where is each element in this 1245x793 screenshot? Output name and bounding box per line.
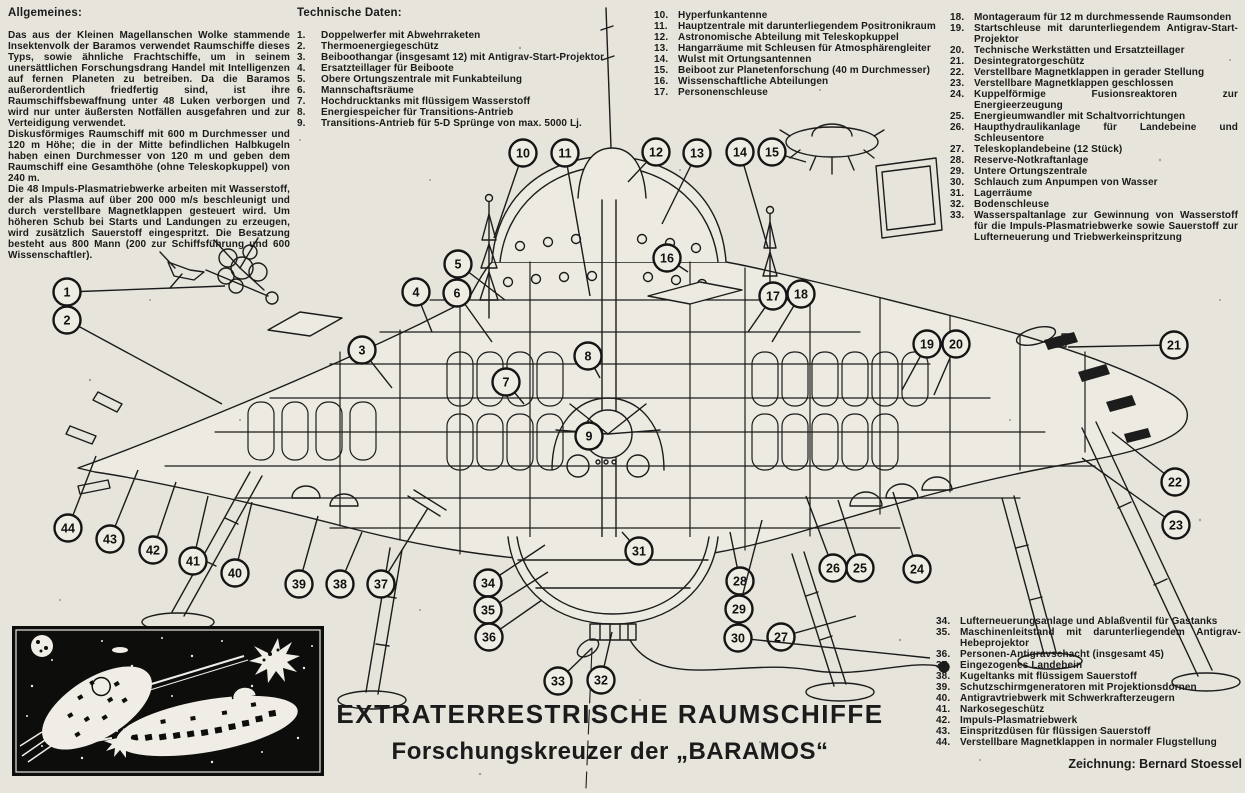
legend-item-text: Startschleuse mit darunterliegendem Anti…	[974, 23, 1238, 45]
legend-item: 20. Technische Werkstätten und Ersatztei…	[950, 45, 1238, 56]
legend-item-number: 10.	[654, 10, 678, 21]
svg-text:35: 35	[481, 604, 495, 618]
legend-item-number: 9.	[297, 118, 321, 129]
beiboot-and-hangar	[780, 124, 942, 238]
svg-text:9: 9	[586, 430, 593, 444]
artist-credit: Zeichnung: Bernard Stoessel	[1062, 757, 1242, 771]
svg-text:4: 4	[413, 286, 420, 300]
svg-text:25: 25	[853, 562, 867, 576]
legend-item: 7. Hochdrucktanks mit flüssigem Wasserst…	[297, 96, 623, 107]
legend-item-number: 1.	[297, 30, 321, 41]
callout-21: 21	[1068, 332, 1188, 359]
svg-text:41: 41	[186, 555, 200, 569]
legend-item-number: 22.	[950, 67, 974, 78]
legend-item-number: 23.	[950, 78, 974, 89]
legend-item: 11. Hauptzentrale mit darunterliegendem …	[654, 21, 942, 32]
legend-item-text: Haupthydraulikanlage für Landebeine und …	[974, 122, 1238, 144]
legend-item: 32. Bodenschleuse	[950, 199, 1238, 210]
legend-item-text: Thermoenergiegeschütz	[321, 41, 623, 52]
general-info-column: Allgemeines: Das aus der Kleinen Magella…	[8, 8, 290, 261]
callout-30: 30	[725, 625, 931, 659]
legend-item-text: Technische Werkstätten und Ersatzteillag…	[974, 45, 1238, 56]
legend-item-text: Schutzschirmgeneratoren mit Projektionsd…	[960, 682, 1241, 693]
svg-text:40: 40	[228, 567, 242, 581]
legend-item-number: 38.	[936, 671, 960, 682]
svg-text:37: 37	[374, 578, 388, 592]
legend-item: 29. Untere Ortungszentrale	[950, 166, 1238, 177]
svg-text:22: 22	[1168, 476, 1182, 490]
legend-item-text: Narkosegeschütz	[960, 704, 1241, 715]
legend-item-text: Ersatzteillager für Beiboote	[321, 63, 623, 74]
svg-text:1: 1	[64, 286, 71, 300]
legend-item: 19. Startschleuse mit darunterliegendem …	[950, 23, 1238, 45]
legend-item-number: 19.	[950, 23, 974, 45]
legend-item-text: Wasserspaltanlage zur Gewinnung von Wass…	[974, 210, 1238, 243]
legend-item-number: 17.	[654, 87, 678, 98]
legend-list-34-44: 34. Lufterneuerungsanlage und Ablaßventi…	[936, 616, 1241, 748]
legend-item-number: 24.	[950, 89, 974, 111]
legend-item-text: Personenschleuse	[678, 87, 942, 98]
legend-item-text: Energieumwandler mit Schaltvorrichtungen	[974, 111, 1238, 122]
legend-item: 23. Verstellbare Magnetklappen geschloss…	[950, 78, 1238, 89]
legend-item-number: 35.	[936, 627, 960, 649]
legend-item: 42. Impuls-Plasmatriebwerk	[936, 715, 1241, 726]
svg-text:21: 21	[1167, 339, 1181, 353]
legend-item-number: 7.	[297, 96, 321, 107]
svg-text:31: 31	[632, 545, 646, 559]
svg-text:2: 2	[64, 314, 71, 328]
svg-text:36: 36	[482, 631, 496, 645]
svg-text:18: 18	[794, 288, 808, 302]
callout-2: 2	[54, 307, 223, 405]
legend-item-number: 39.	[936, 682, 960, 693]
legend-item-text: Desintegratorgeschütz	[974, 56, 1238, 67]
svg-text:15: 15	[765, 146, 779, 160]
svg-text:16: 16	[660, 252, 674, 266]
legend-item: 39. Schutzschirmgeneratoren mit Projekti…	[936, 682, 1241, 693]
legend-item: 37. Eingezogenes Landebein	[936, 660, 1241, 671]
legend-item-number: 8.	[297, 107, 321, 118]
scanned-diagram-page: 1234567891011121314151617181920212223242…	[0, 0, 1245, 793]
svg-text:14: 14	[733, 146, 747, 160]
svg-text:39: 39	[292, 578, 306, 592]
legend-item-number: 32.	[950, 199, 974, 210]
svg-text:11: 11	[558, 147, 571, 161]
legend-item-number: 27.	[950, 144, 974, 155]
legend-item-number: 15.	[654, 65, 678, 76]
legend-column-10-17: 10. Hyperfunkantenne 11. Hauptzentrale m…	[654, 10, 942, 98]
legend-item-text: Hyperfunkantenne	[678, 10, 942, 21]
legend-item: 5. Obere Ortungszentrale mit Funkabteilu…	[297, 74, 623, 85]
legend-item: 40. Antigravtriebwerk mit Schwerkrafterz…	[936, 693, 1241, 704]
legend-item-number: 5.	[297, 74, 321, 85]
space-battle-scene	[12, 626, 324, 776]
legend-item-number: 20.	[950, 45, 974, 56]
legend-item: 3. Beiboothangar (insgesamt 12) mit Anti…	[297, 52, 623, 63]
legend-item: 24. Kuppelförmige Fusionsreaktoren zur E…	[950, 89, 1238, 111]
legend-item-text: Antigravtriebwerk mit Schwerkrafterzeuge…	[960, 693, 1241, 704]
legend-item: 12. Astronomische Abteilung mit Teleskop…	[654, 32, 942, 43]
rim-fins	[66, 392, 122, 494]
legend-item-number: 14.	[654, 54, 678, 65]
svg-text:17: 17	[766, 290, 780, 304]
callout-43: 43	[97, 470, 139, 553]
legend-item-number: 30.	[950, 177, 974, 188]
legend-item: 14. Wulst mit Ortungsantennen	[654, 54, 942, 65]
tech-data-list: 1. Doppelwerfer mit Abwehrraketen 2. The…	[297, 30, 623, 129]
legend-item-number: 13.	[654, 43, 678, 54]
general-paragraphs: Das aus der Kleinen Magellanschen Wolke …	[8, 30, 290, 261]
svg-text:34: 34	[481, 577, 495, 591]
legend-item-number: 34.	[936, 616, 960, 627]
legend-item-text: Lagerräume	[974, 188, 1238, 199]
legend-item: 34. Lufterneuerungsanlage und Ablaßventi…	[936, 616, 1241, 627]
legend-item: 33. Wasserspaltanlage zur Gewinnung von …	[950, 210, 1238, 243]
svg-text:32: 32	[594, 674, 608, 688]
page-subtitle: Forschungskreuzer der „BARAMOS“	[320, 738, 900, 766]
general-heading: Allgemeines:	[8, 8, 290, 19]
svg-text:20: 20	[949, 338, 963, 352]
legend-item-text: Transitions-Antrieb für 5-D Sprünge von …	[321, 118, 623, 129]
legend-item-number: 40.	[936, 693, 960, 704]
legend-item: 36. Personen-Antigravschacht (insgesamt …	[936, 649, 1241, 660]
svg-text:10: 10	[516, 147, 530, 161]
callout-1: 1	[54, 279, 226, 306]
legend-item-number: 26.	[950, 122, 974, 144]
legend-item-text: Personen-Antigravschacht (insgesamt 45)	[960, 649, 1241, 660]
legend-item-text: Hochdrucktanks mit flüssigem Wasserstoff	[321, 96, 623, 107]
legend-item-text: Schlauch zum Anpumpen von Wasser	[974, 177, 1238, 188]
legend-item-text: Verstellbare Magnetklappen in gerader St…	[974, 67, 1238, 78]
legend-item-text: Eingezogenes Landebein	[960, 660, 1241, 671]
legend-item-number: 11.	[654, 21, 678, 32]
legend-item-text: Astronomische Abteilung mit Teleskopkupp…	[678, 32, 942, 43]
legend-item: 30. Schlauch zum Anpumpen von Wasser	[950, 177, 1238, 188]
planet	[31, 635, 53, 657]
legend-item-text: Verstellbare Magnetklappen in normaler F…	[960, 737, 1241, 748]
legend-item: 21. Desintegratorgeschütz	[950, 56, 1238, 67]
legend-item: 26. Haupthydraulikanlage für Landebeine …	[950, 122, 1238, 144]
legend-item: 15. Beiboot zur Planetenforschung (40 m …	[654, 65, 942, 76]
legend-item-text: Obere Ortungszentrale mit Funkabteilung	[321, 74, 623, 85]
legend-item: 2. Thermoenergiegeschütz	[297, 41, 623, 52]
legend-item-text: Maschinenleitstand mit darunterliegendem…	[960, 627, 1241, 649]
svg-text:19: 19	[920, 338, 934, 352]
general-paragraph: Die 48 Impuls-Plasmatriebwerke arbeiten …	[8, 184, 290, 261]
hull-outline	[78, 262, 1187, 562]
legend-column-18-33: 18. Montageraum für 12 m durchmessende R…	[950, 12, 1238, 243]
legend-item-text: Reserve-Notkraftanlage	[974, 155, 1238, 166]
svg-text:7: 7	[503, 376, 510, 390]
svg-text:23: 23	[1169, 519, 1183, 533]
legend-item-text: Doppelwerfer mit Abwehrraketen	[321, 30, 623, 41]
legend-item: 16. Wissenschaftliche Abteilungen	[654, 76, 942, 87]
legend-item-text: Wissenschaftliche Abteilungen	[678, 76, 942, 87]
legend-item-text: Bodenschleuse	[974, 199, 1238, 210]
svg-text:30: 30	[731, 632, 745, 646]
svg-text:12: 12	[649, 146, 663, 160]
legend-item: 35. Maschinenleitstand mit darunterliege…	[936, 627, 1241, 649]
distant-ship	[112, 647, 128, 653]
legend-item-text: Lufterneuerungsanlage und Ablaßventil fü…	[960, 616, 1241, 627]
legend-item-text: Montageraum für 12 m durchmessende Raums…	[974, 12, 1238, 23]
callout-41: 41	[180, 496, 209, 575]
svg-text:6: 6	[454, 287, 461, 301]
legend-item: 8. Energiespeicher für Transitions-Antri…	[297, 107, 623, 118]
legend-item-text: Mannschaftsräume	[321, 85, 623, 96]
legend-item-text: Beiboot zur Planetenforschung (40 m Durc…	[678, 65, 942, 76]
legend-item: 4. Ersatzteillager für Beiboote	[297, 63, 623, 74]
svg-text:42: 42	[146, 544, 160, 558]
legend-item-number: 2.	[297, 41, 321, 52]
general-paragraph: Diskusförmiges Raumschiff mit 600 m Durc…	[8, 129, 290, 184]
legend-item-number: 6.	[297, 85, 321, 96]
svg-text:33: 33	[551, 675, 565, 689]
legend-item: 10. Hyperfunkantenne	[654, 10, 942, 21]
page-title: EXTRATERRESTRISCHE RAUMSCHIFFE	[320, 699, 900, 730]
legend-item-number: 43.	[936, 726, 960, 737]
legend-item-text: Hangarräume mit Schleusen für Atmosphäre…	[678, 43, 942, 54]
legend-item: 43. Einspritzdüsen für flüssigen Sauerst…	[936, 726, 1241, 737]
legend-item-number: 25.	[950, 111, 974, 122]
svg-text:24: 24	[910, 563, 924, 577]
legend-item-number: 4.	[297, 63, 321, 74]
legend-item: 41. Narkosegeschütz	[936, 704, 1241, 715]
legend-item-text: Wulst mit Ortungsantennen	[678, 54, 942, 65]
legend-item: 13. Hangarräume mit Schleusen für Atmosp…	[654, 43, 942, 54]
legend-item-number: 28.	[950, 155, 974, 166]
svg-text:5: 5	[455, 258, 462, 272]
legend-item-number: 3.	[297, 52, 321, 63]
inset-space-battle-illustration	[12, 626, 324, 776]
legend-item-number: 18.	[950, 12, 974, 23]
svg-text:26: 26	[826, 562, 840, 576]
svg-text:29: 29	[732, 603, 746, 617]
legend-item-text: Einspritzdüsen für flüssigen Sauerstoff	[960, 726, 1241, 737]
legend-item-number: 44.	[936, 737, 960, 748]
legend-item: 31. Lagerräume	[950, 188, 1238, 199]
svg-text:43: 43	[103, 533, 117, 547]
legend-item: 1. Doppelwerfer mit Abwehrraketen	[297, 30, 623, 41]
legend-item-number: 31.	[950, 188, 974, 199]
tech-data-column: Technische Daten: 1. Doppelwerfer mit Ab…	[297, 8, 623, 129]
legend-column-34-44: 34. Lufterneuerungsanlage und Ablaßventi…	[936, 616, 1241, 748]
legend-item-number: 41.	[936, 704, 960, 715]
legend-item: 22. Verstellbare Magnetklappen in gerade…	[950, 67, 1238, 78]
general-paragraph: Das aus der Kleinen Magellanschen Wolke …	[8, 30, 290, 129]
legend-item-text: Energiespeicher für Transitions-Antrieb	[321, 107, 623, 118]
callout-9: 9	[576, 423, 603, 450]
legend-item: 28. Reserve-Notkraftanlage	[950, 155, 1238, 166]
tech-data-heading: Technische Daten:	[297, 8, 623, 19]
legend-list-10-17: 10. Hyperfunkantenne 11. Hauptzentrale m…	[654, 10, 942, 98]
legend-item: 27. Teleskoplandebeine (12 Stück)	[950, 144, 1238, 155]
legend-item: 18. Montageraum für 12 m durchmessende R…	[950, 12, 1238, 23]
legend-item-text: Kuppelförmige Fusionsreaktoren zur Energ…	[974, 89, 1238, 111]
svg-text:8: 8	[585, 350, 592, 364]
legend-item-text: Untere Ortungszentrale	[974, 166, 1238, 177]
svg-text:13: 13	[690, 147, 704, 161]
legend-item: 38. Kugeltanks mit flüssigem Sauerstoff	[936, 671, 1241, 682]
legend-item-text: Teleskoplandebeine (12 Stück)	[974, 144, 1238, 155]
callout-33: 33	[545, 648, 593, 695]
callout-38: 38	[327, 532, 363, 598]
svg-text:38: 38	[333, 578, 347, 592]
legend-item: 17. Personenschleuse	[654, 87, 942, 98]
legend-item-text: Beiboothangar (insgesamt 12) mit Antigra…	[321, 52, 623, 63]
legend-item-number: 16.	[654, 76, 678, 87]
title-block: EXTRATERRESTRISCHE RAUMSCHIFFE Forschung…	[320, 699, 900, 766]
legend-item-number: 12.	[654, 32, 678, 43]
svg-text:3: 3	[359, 344, 366, 358]
legend-item-number: 29.	[950, 166, 974, 177]
legend-item: 25. Energieumwandler mit Schaltvorrichtu…	[950, 111, 1238, 122]
callout-24: 24	[893, 492, 931, 583]
legend-item-number: 37.	[936, 660, 960, 671]
legend-item: 6. Mannschaftsräume	[297, 85, 623, 96]
legend-item: 9. Transitions-Antrieb für 5-D Sprünge v…	[297, 118, 623, 129]
legend-item-number: 42.	[936, 715, 960, 726]
legend-item: 44. Verstellbare Magnetklappen in normal…	[936, 737, 1241, 748]
callout-42: 42	[140, 482, 177, 564]
legend-list-18-33: 18. Montageraum für 12 m durchmessende R…	[950, 12, 1238, 243]
legend-item-text: Hauptzentrale mit darunterliegendem Posi…	[678, 21, 942, 32]
legend-item-text: Verstellbare Magnetklappen geschlossen	[974, 78, 1238, 89]
legend-item-number: 21.	[950, 56, 974, 67]
callout-39: 39	[286, 516, 319, 598]
legend-item-number: 36.	[936, 649, 960, 660]
svg-text:44: 44	[61, 522, 75, 536]
legend-item-text: Kugeltanks mit flüssigem Sauerstoff	[960, 671, 1241, 682]
legend-item-number: 33.	[950, 210, 974, 243]
legend-item-text: Impuls-Plasmatriebwerk	[960, 715, 1241, 726]
